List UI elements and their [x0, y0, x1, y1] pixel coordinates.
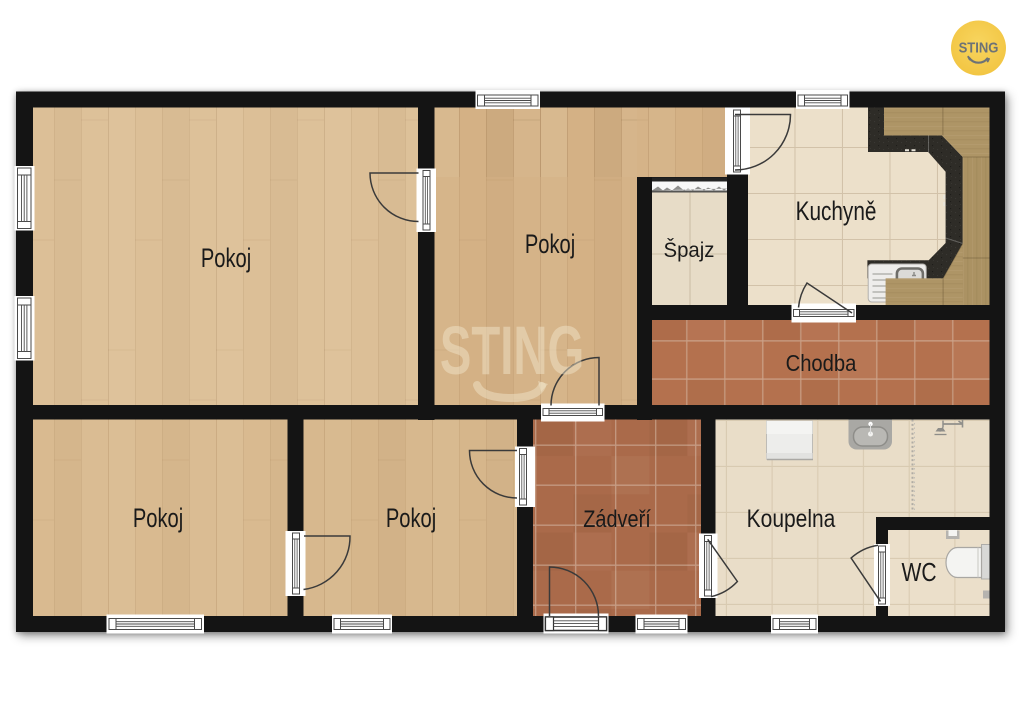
svg-text:Pokoj: Pokoj: [525, 229, 575, 258]
svg-text:Kuchyně: Kuchyně: [796, 196, 877, 226]
svg-text:STING: STING: [440, 313, 584, 389]
svg-text:STING: STING: [959, 40, 999, 56]
svg-text:Pokoj: Pokoj: [386, 503, 436, 532]
svg-text:WC: WC: [901, 559, 936, 588]
svg-text:Koupelna: Koupelna: [747, 504, 836, 532]
svg-text:Pokoj: Pokoj: [133, 503, 183, 532]
svg-text:Špajz: Špajz: [664, 239, 715, 262]
svg-text:Chodba: Chodba: [786, 350, 858, 377]
svg-text:Zádveří: Zádveří: [583, 505, 651, 532]
svg-text:Pokoj: Pokoj: [201, 243, 251, 272]
